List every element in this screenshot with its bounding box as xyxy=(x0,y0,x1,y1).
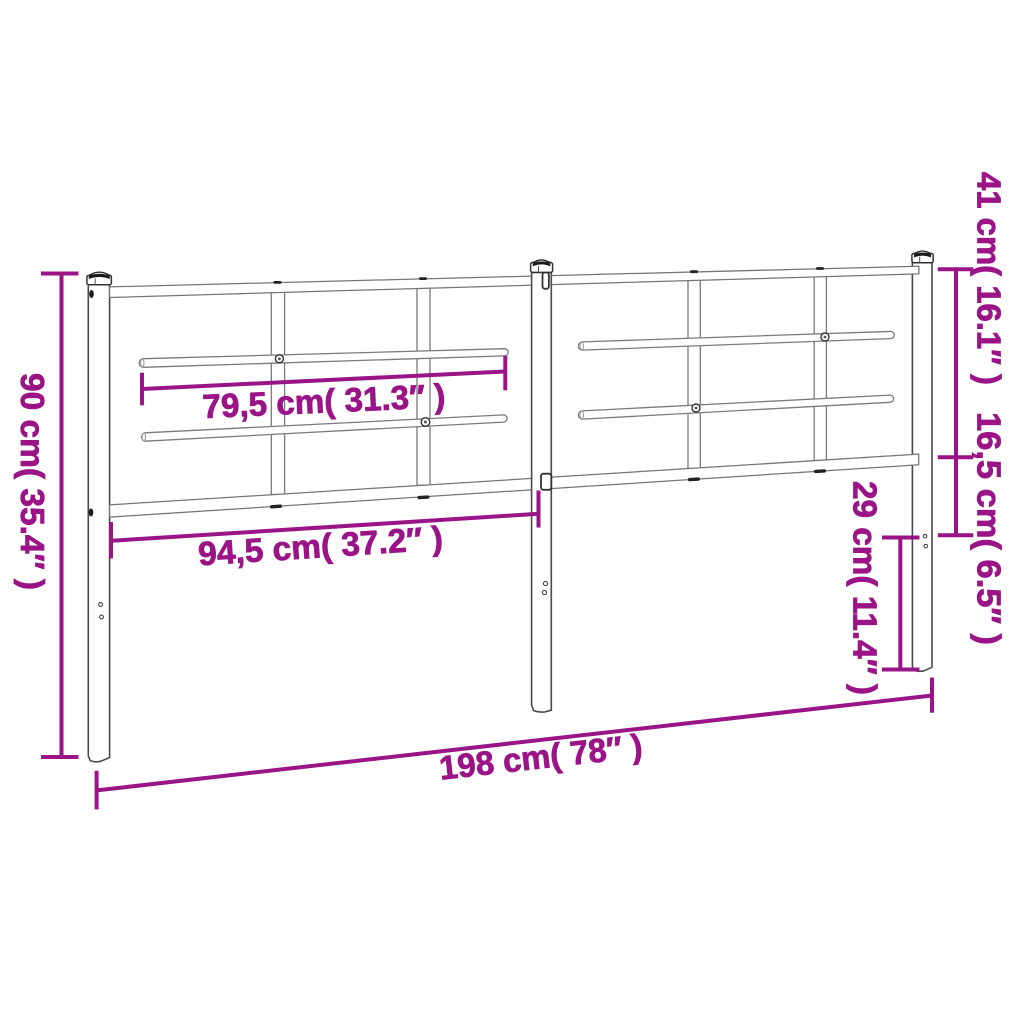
svg-text:16,5 cm( 6.5″ ): 16,5 cm( 6.5″ ) xyxy=(970,412,1007,645)
svg-text:90 cm( 35.4″ ): 90 cm( 35.4″ ) xyxy=(13,373,50,590)
svg-text:29 cm( 11.4″ ): 29 cm( 11.4″ ) xyxy=(846,481,883,695)
svg-text:41 cm( 16.1″ ): 41 cm( 16.1″ ) xyxy=(970,172,1007,385)
